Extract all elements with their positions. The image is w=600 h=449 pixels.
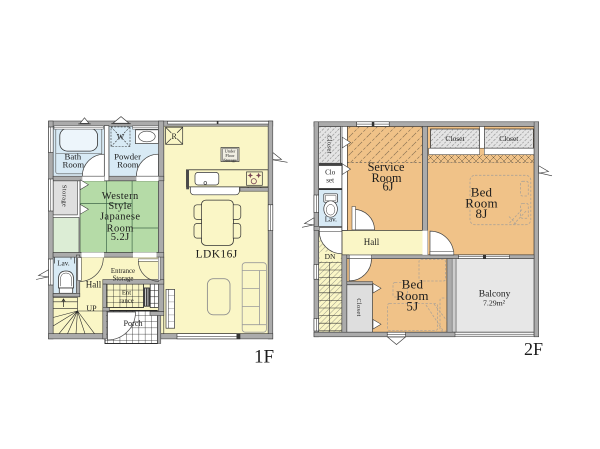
- svg-text:LDK16J: LDK16J: [196, 248, 238, 260]
- svg-text:8J: 8J: [476, 206, 488, 221]
- svg-text:DN: DN: [325, 252, 336, 261]
- svg-text:Style: Style: [108, 201, 132, 212]
- svg-text:Storage: Storage: [61, 185, 68, 207]
- svg-text:Japanese: Japanese: [100, 211, 141, 222]
- svg-text:Clo: Clo: [325, 169, 336, 177]
- svg-text:Lav.: Lav.: [325, 216, 337, 224]
- svg-text:2F: 2F: [524, 339, 543, 359]
- svg-text:Hall: Hall: [364, 237, 380, 247]
- svg-text:Storage: Storage: [113, 275, 134, 282]
- svg-text:Porch: Porch: [123, 319, 142, 328]
- svg-text:W: W: [117, 133, 125, 142]
- svg-text:UP: UP: [86, 304, 97, 313]
- svg-text:6J: 6J: [383, 180, 394, 194]
- svg-text:Closet: Closet: [355, 298, 362, 316]
- svg-text:Closet: Closet: [326, 135, 333, 153]
- svg-text:Closet: Closet: [445, 134, 465, 143]
- svg-text:Room: Room: [63, 160, 85, 170]
- svg-text:5J: 5J: [406, 299, 418, 314]
- svg-text:Lav.: Lav.: [57, 259, 69, 267]
- svg-text:Storage: Storage: [223, 157, 236, 162]
- svg-text:Entrance: Entrance: [111, 268, 135, 275]
- svg-text:5.2J: 5.2J: [111, 232, 130, 243]
- svg-text:R: R: [172, 132, 178, 141]
- svg-text:7.29m²: 7.29m²: [483, 298, 506, 307]
- svg-text:Room: Room: [117, 160, 139, 170]
- svg-text:rance: rance: [119, 297, 134, 304]
- svg-text:Closet: Closet: [499, 134, 519, 143]
- svg-text:Ent: Ent: [122, 289, 131, 296]
- svg-text:set: set: [326, 177, 334, 185]
- svg-text:1F: 1F: [254, 347, 274, 368]
- svg-text:Hall: Hall: [86, 279, 102, 289]
